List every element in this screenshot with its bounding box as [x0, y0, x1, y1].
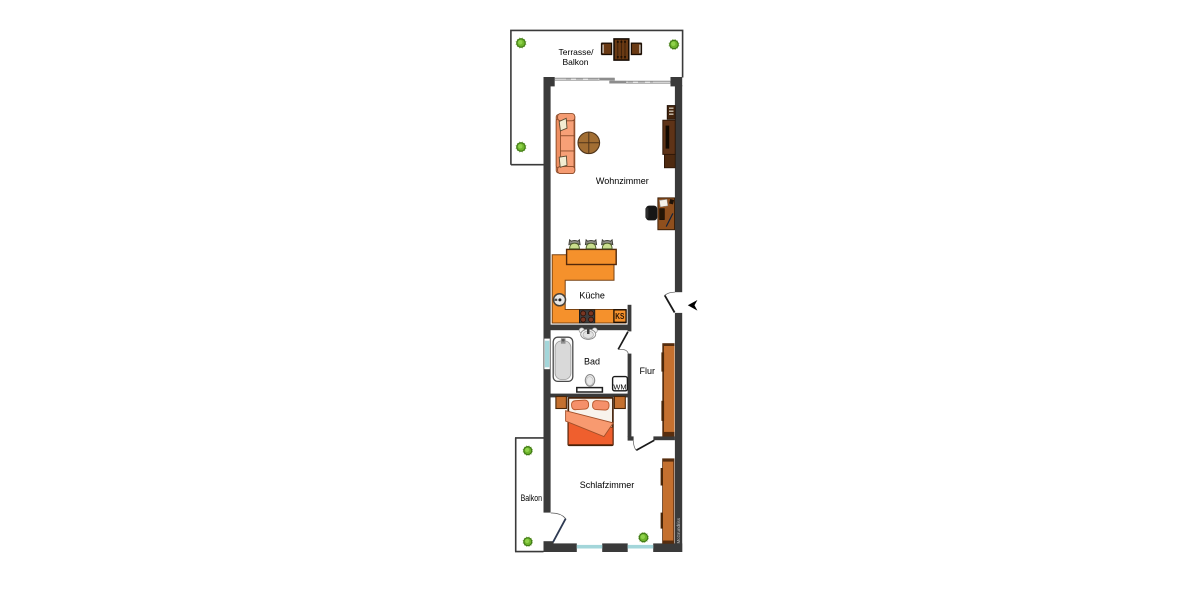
- svg-text:Balkon: Balkon: [563, 57, 589, 67]
- svg-text:Bad: Bad: [584, 357, 600, 367]
- svg-text:Balkon: Balkon: [521, 493, 543, 503]
- svg-text:Schlafzimmer: Schlafzimmer: [580, 480, 635, 490]
- svg-text:KS: KS: [615, 311, 624, 321]
- svg-text:McGrundriss: McGrundriss: [676, 517, 681, 543]
- svg-text:WM: WM: [613, 382, 626, 391]
- svg-text:Flur: Flur: [640, 366, 656, 376]
- svg-text:Wohnzimmer: Wohnzimmer: [596, 176, 649, 186]
- svg-text:Küche: Küche: [579, 290, 605, 300]
- svg-text:Terrasse/: Terrasse/: [559, 47, 595, 57]
